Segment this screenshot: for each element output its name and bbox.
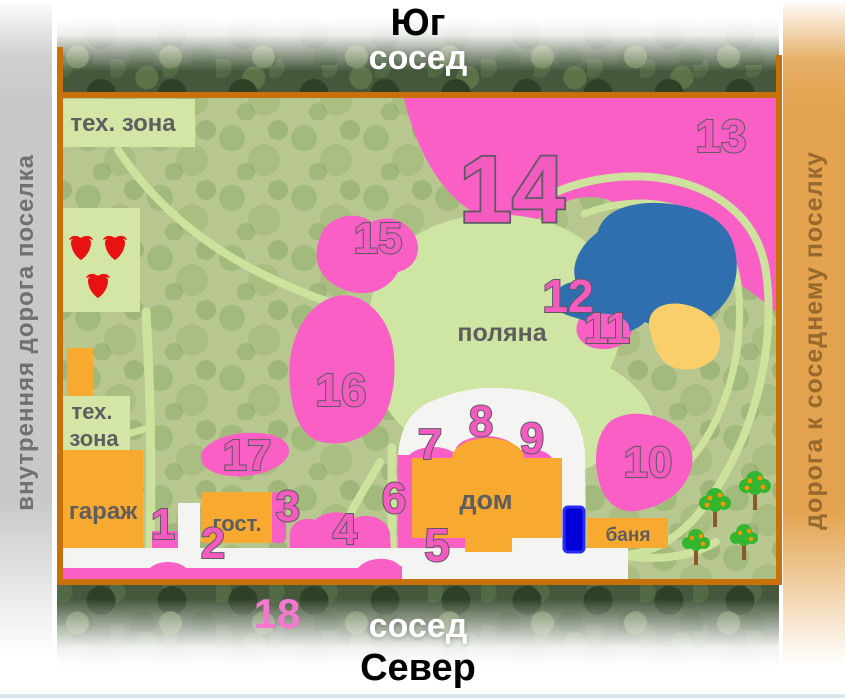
compass-north-label: Север <box>57 649 779 687</box>
zone-number-5: 5 <box>424 519 450 571</box>
zone-number-17: 17 <box>223 431 272 480</box>
road-right: дорога к соседнему поселку <box>783 0 845 680</box>
zone-number-4: 4 <box>333 505 358 554</box>
garage-label: гараж <box>69 498 138 525</box>
zone-number-7: 7 <box>418 420 442 469</box>
road-right-label: дорога к соседнему поселку <box>800 151 829 530</box>
zone-number-6: 6 <box>382 474 406 523</box>
zone-number-10: 10 <box>624 438 673 487</box>
zone-number-2: 2 <box>201 519 225 568</box>
zone-number-1: 1 <box>151 500 175 549</box>
zone-number-9: 9 <box>520 414 544 463</box>
car <box>564 507 584 552</box>
road-left-label: внутренняя дорога поселка <box>12 154 40 511</box>
house-label: дом <box>459 485 512 515</box>
zone-number-16: 16 <box>315 364 366 416</box>
plot-plan-svg: тех. зона тех. зона гараж гост. дом баня… <box>0 0 845 698</box>
zone-number-15: 15 <box>354 214 403 263</box>
neighbor-bottom-label: сосед <box>57 609 779 643</box>
zone-number-8: 8 <box>469 397 493 446</box>
tech-zone-top-label: тех. зона <box>70 110 176 137</box>
zone-number-13: 13 <box>695 110 746 162</box>
zone-number-3: 3 <box>276 482 300 531</box>
garden-plan-screenshot: тех. зона тех. зона гараж гост. дом баня… <box>0 0 845 698</box>
compass-south-label: Юг <box>57 4 779 42</box>
bathhouse-label: баня <box>606 525 651 546</box>
zone-number-12: 12 <box>542 270 593 322</box>
tech-zone-left-label-1: тех. <box>71 399 112 424</box>
zone-number-14: 14 <box>459 137 565 243</box>
tech-shed <box>67 348 93 396</box>
strawberry-bed <box>63 208 140 312</box>
bottom-edge-line <box>0 694 845 698</box>
road-left: внутренняя дорога поселка <box>0 0 52 665</box>
neighbor-top-label: сосед <box>57 41 779 75</box>
meadow-label: поляна <box>457 319 547 347</box>
tech-zone-left-label-2: зона <box>69 426 119 451</box>
